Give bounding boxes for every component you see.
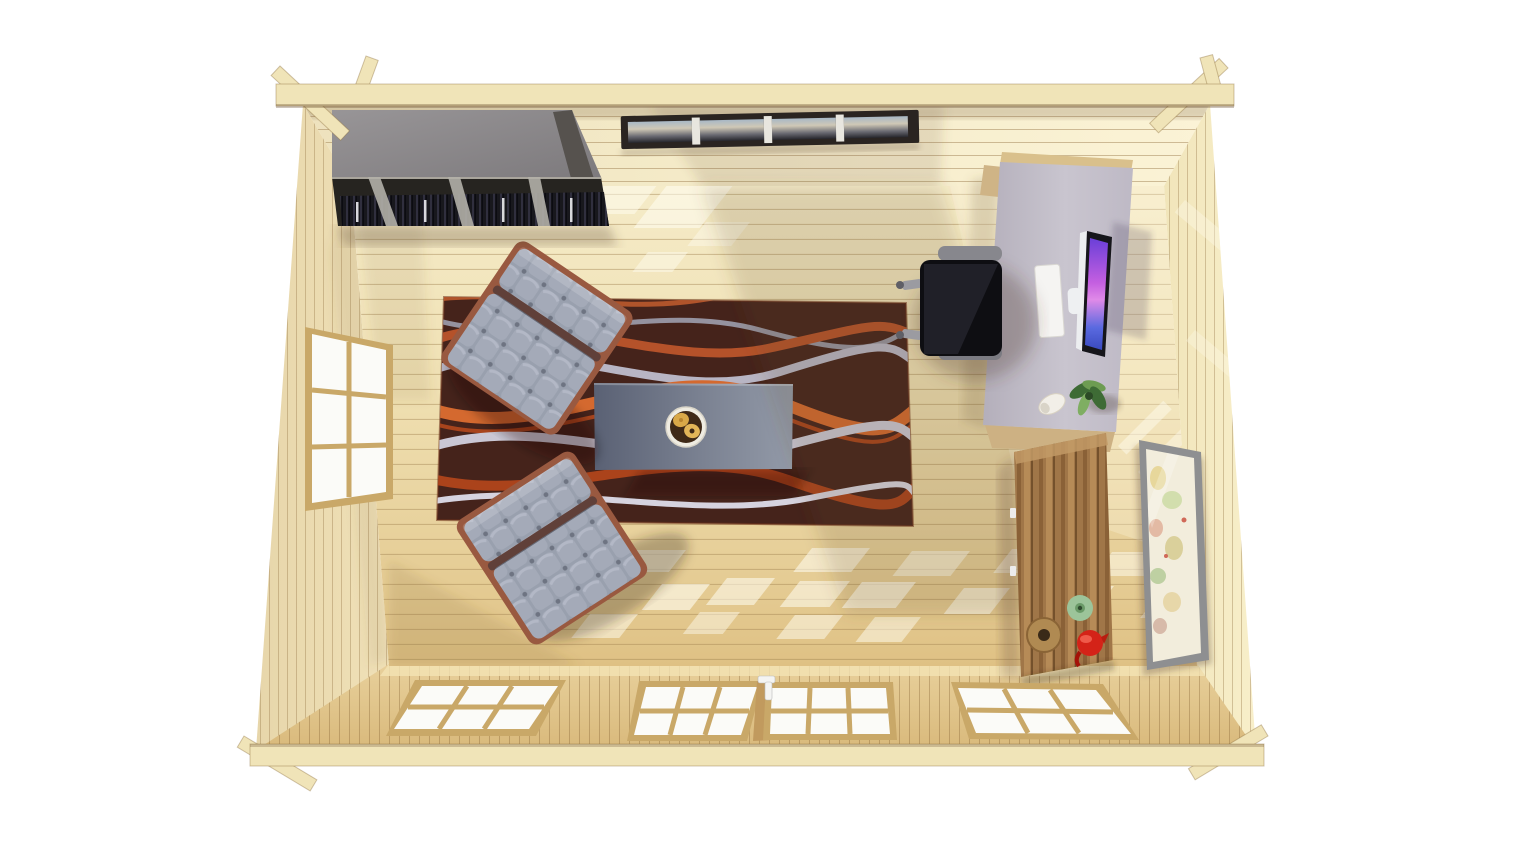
green-vase-opening — [1078, 606, 1082, 610]
photo-mat — [836, 114, 845, 141]
base-beam-shadow-line — [250, 744, 1264, 747]
cabin-render — [0, 0, 1536, 864]
map-frame — [1135, 440, 1212, 676]
framed-photo — [628, 121, 692, 143]
window-mullion — [967, 710, 1113, 712]
photo-mat — [764, 116, 773, 143]
book-page-edge — [356, 202, 359, 222]
cabinet — [998, 433, 1115, 687]
top-roof-beam — [276, 84, 1234, 106]
monitor-shadow — [1105, 222, 1152, 340]
map-blob — [1162, 491, 1182, 509]
map-blob — [1182, 518, 1187, 523]
book-page-edge — [424, 200, 427, 222]
coffee-table-shadow — [625, 470, 810, 496]
caster-wheel — [896, 281, 904, 289]
front-door-right — [763, 682, 897, 740]
photo-mat — [692, 117, 701, 144]
front-door-left — [627, 681, 763, 741]
cabinet-hinge — [1010, 566, 1016, 576]
book-page-edge — [570, 198, 573, 222]
map-blob — [1163, 592, 1181, 612]
chair-armrest — [938, 246, 1002, 261]
picture-gallery — [621, 110, 920, 156]
coffee-table-edge-highlight — [594, 384, 793, 385]
cookie-bowl — [666, 407, 706, 447]
map-blob — [1153, 618, 1167, 634]
caster-wheel — [896, 331, 904, 339]
plant-center — [1085, 392, 1093, 400]
map-blob — [1150, 568, 1166, 584]
framed-photo — [700, 119, 764, 141]
book-page-edge — [502, 198, 505, 222]
keyboard — [1035, 264, 1065, 338]
red-kettle-lid — [1080, 635, 1092, 643]
cabinet-hinge — [1010, 508, 1016, 518]
bookshelf — [332, 110, 618, 246]
roof-beam-shadow-line — [276, 104, 1234, 108]
window-mullion — [312, 445, 386, 447]
map-blob — [1164, 554, 1168, 558]
bottom-base-beam — [250, 744, 1264, 766]
bookshelf-shadow — [336, 226, 618, 246]
left-wall-window — [305, 327, 393, 511]
wooden-bowl-center — [1038, 629, 1050, 641]
monitor-stand — [1067, 288, 1082, 315]
cookie-hole — [690, 429, 695, 434]
framed-photo — [844, 116, 908, 138]
front-window-left — [386, 680, 566, 736]
red-kettle — [1077, 630, 1103, 656]
framed-photo — [772, 118, 836, 140]
door-handle-stem — [765, 682, 772, 700]
cookie-hole — [679, 418, 683, 422]
render-canvas: Top-down 3D render of a log-cabin home o… — [0, 0, 1536, 864]
